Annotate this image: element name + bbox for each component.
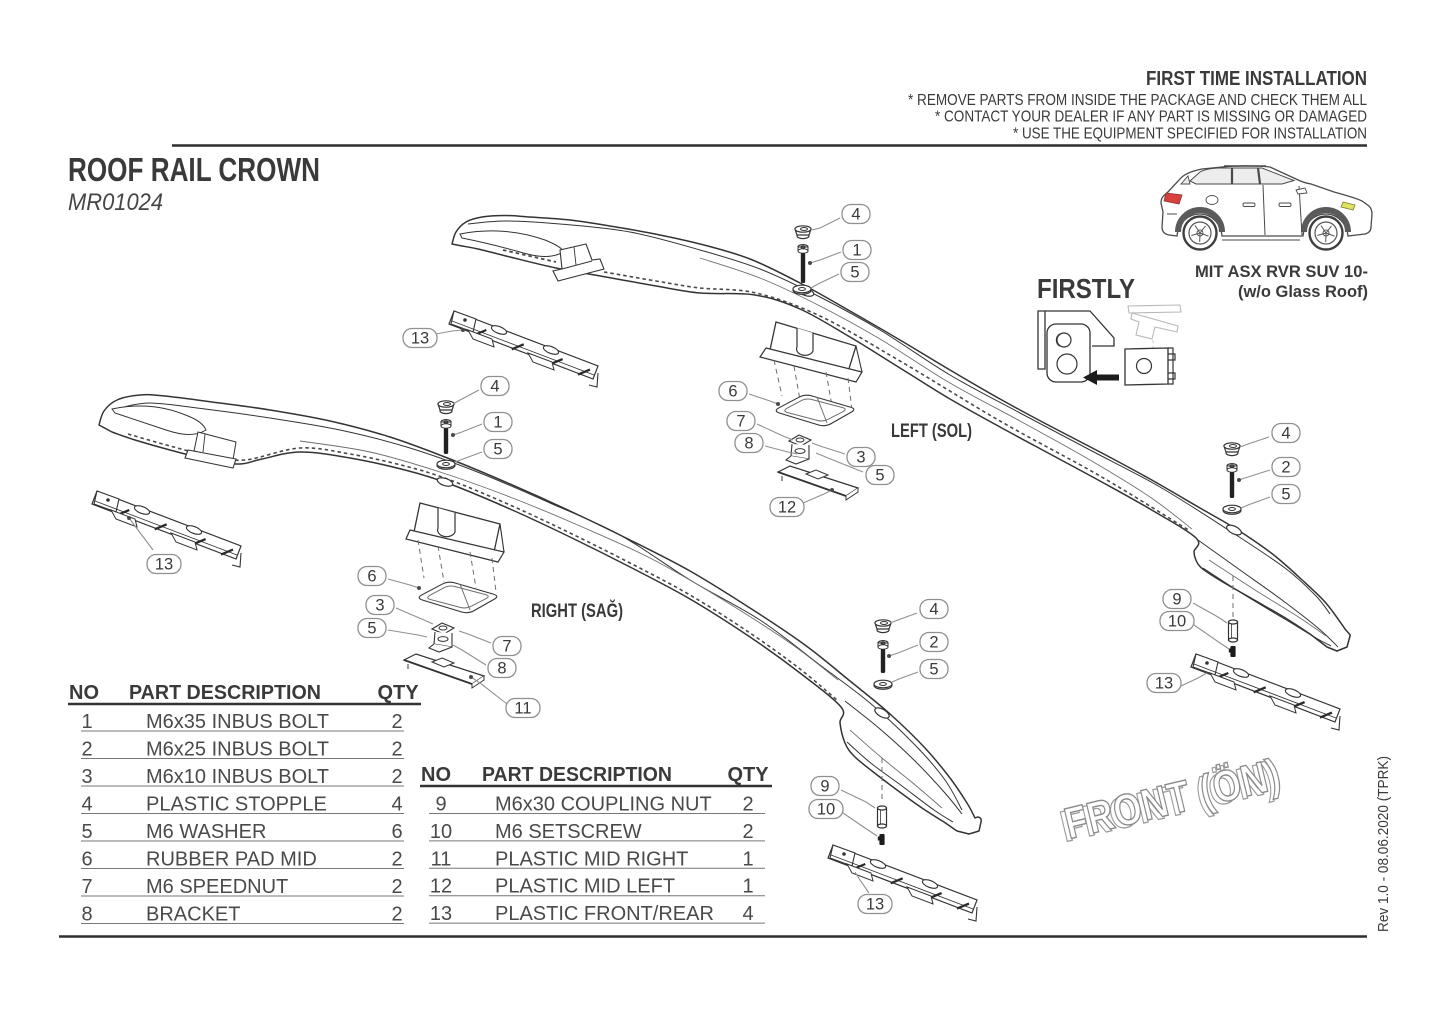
svg-text:PART DESCRIPTION: PART DESCRIPTION (482, 764, 672, 786)
svg-text:PLASTIC MID LEFT: PLASTIC MID LEFT (495, 876, 675, 898)
svg-text:5: 5 (81, 821, 92, 843)
svg-text:7: 7 (81, 876, 92, 898)
svg-text:FIRSTLY: FIRSTLY (1037, 273, 1135, 304)
svg-text:PLASTIC STOPPLE: PLASTIC STOPPLE (146, 794, 327, 816)
svg-text:RIGHT (SAĞ): RIGHT (SAĞ) (531, 600, 623, 622)
svg-text:LEFT (SOL): LEFT (SOL) (891, 421, 972, 442)
svg-text:8: 8 (497, 660, 506, 678)
svg-text:FIRST TIME INSTALLATION: FIRST TIME INSTALLATION (1146, 68, 1367, 90)
svg-text:5: 5 (850, 264, 859, 282)
svg-text:PLASTIC FRONT/REAR: PLASTIC FRONT/REAR (495, 903, 714, 925)
svg-text:13: 13 (430, 903, 452, 925)
svg-text:10: 10 (1168, 613, 1186, 631)
svg-text:11: 11 (431, 848, 452, 870)
svg-text:NO: NO (421, 764, 451, 786)
svg-text:2: 2 (391, 766, 402, 788)
svg-text:4: 4 (742, 903, 753, 925)
svg-text:10: 10 (817, 801, 835, 819)
svg-text:4: 4 (929, 601, 938, 619)
svg-text:11: 11 (514, 700, 531, 718)
svg-text:9: 9 (1172, 591, 1181, 609)
svg-text:QTY: QTY (377, 682, 419, 704)
svg-text:2: 2 (391, 739, 402, 761)
svg-text:5: 5 (1281, 486, 1290, 504)
svg-text:4: 4 (81, 794, 92, 816)
svg-text:13: 13 (1155, 675, 1173, 693)
svg-text:2: 2 (1281, 459, 1290, 477)
svg-text:13: 13 (866, 896, 884, 914)
svg-text:2: 2 (391, 904, 402, 926)
svg-text:1: 1 (742, 876, 753, 898)
svg-text:3: 3 (856, 449, 865, 467)
svg-text:M6 SETSCREW: M6 SETSCREW (495, 821, 642, 843)
svg-text:2: 2 (81, 739, 92, 761)
svg-text:6: 6 (367, 568, 376, 586)
svg-text:5: 5 (929, 661, 938, 679)
svg-text:PART DESCRIPTION: PART DESCRIPTION (129, 682, 321, 704)
svg-text:9: 9 (435, 794, 446, 816)
svg-text:1: 1 (852, 242, 861, 260)
svg-text:9: 9 (820, 778, 829, 796)
svg-text:4: 4 (1281, 425, 1290, 443)
svg-text:PLASTIC MID RIGHT: PLASTIC MID RIGHT (495, 848, 688, 870)
svg-text:QTY: QTY (727, 764, 769, 786)
svg-text:(w/o Glass Roof): (w/o Glass Roof) (1238, 282, 1368, 301)
svg-text:4: 4 (391, 794, 402, 816)
svg-text:1: 1 (81, 711, 92, 733)
svg-text:* REMOVE PARTS FROM INSIDE THE: * REMOVE PARTS FROM INSIDE THE PACKAGE A… (908, 92, 1367, 109)
svg-text:7: 7 (736, 413, 745, 431)
svg-text:5: 5 (367, 620, 376, 638)
svg-text:2: 2 (742, 821, 753, 843)
svg-text:2: 2 (391, 711, 402, 733)
svg-text:7: 7 (502, 638, 511, 656)
svg-text:8: 8 (81, 904, 92, 926)
svg-text:M6 WASHER: M6 WASHER (146, 821, 266, 843)
svg-text:2: 2 (391, 849, 402, 871)
svg-text:4: 4 (851, 206, 860, 224)
svg-text:6: 6 (728, 383, 737, 401)
svg-text:12: 12 (430, 876, 452, 898)
svg-text:2: 2 (929, 634, 938, 652)
svg-text:13: 13 (155, 556, 173, 574)
svg-text:6: 6 (391, 821, 402, 843)
svg-text:3: 3 (81, 766, 92, 788)
svg-text:RUBBER PAD MID: RUBBER PAD MID (146, 849, 317, 871)
svg-text:* CONTACT YOUR DEALER IF ANY P: * CONTACT YOUR DEALER IF ANY PART IS MIS… (935, 109, 1367, 126)
svg-text:8: 8 (744, 435, 753, 453)
svg-text:2: 2 (742, 794, 753, 816)
svg-text:1: 1 (493, 414, 502, 432)
svg-text:M6x10 INBUS BOLT: M6x10 INBUS BOLT (146, 766, 329, 788)
svg-text:1: 1 (742, 848, 753, 870)
svg-text:5: 5 (493, 441, 502, 459)
svg-text:2: 2 (391, 876, 402, 898)
svg-text:* USE THE EQUIPMENT SPECIFIED: * USE THE EQUIPMENT SPECIFIED FOR INSTAL… (1013, 126, 1367, 143)
svg-text:ROOF RAIL CROWN: ROOF RAIL CROWN (68, 151, 320, 188)
svg-text:M6x25 INBUS BOLT: M6x25 INBUS BOLT (146, 739, 329, 761)
svg-text:Rev 1.0 - 08.06.2020 (TPRK): Rev 1.0 - 08.06.2020 (TPRK) (1375, 756, 1392, 932)
svg-text:M6 SPEEDNUT: M6 SPEEDNUT (146, 876, 288, 898)
svg-text:5: 5 (875, 467, 884, 485)
svg-text:10: 10 (430, 821, 452, 843)
svg-text:6: 6 (81, 849, 92, 871)
svg-text:BRACKET: BRACKET (146, 904, 240, 926)
svg-text:M6x35 INBUS BOLT: M6x35 INBUS BOLT (146, 711, 329, 733)
svg-text:12: 12 (778, 499, 796, 517)
svg-text:NO: NO (69, 682, 99, 704)
svg-text:3: 3 (375, 597, 384, 615)
svg-text:MIT ASX RVR SUV 10-: MIT ASX RVR SUV 10- (1195, 262, 1368, 281)
svg-text:M6x30 COUPLING NUT: M6x30 COUPLING NUT (495, 794, 712, 816)
svg-text:4: 4 (490, 378, 499, 396)
svg-text:MR01024: MR01024 (68, 189, 163, 216)
svg-text:13: 13 (411, 330, 429, 348)
